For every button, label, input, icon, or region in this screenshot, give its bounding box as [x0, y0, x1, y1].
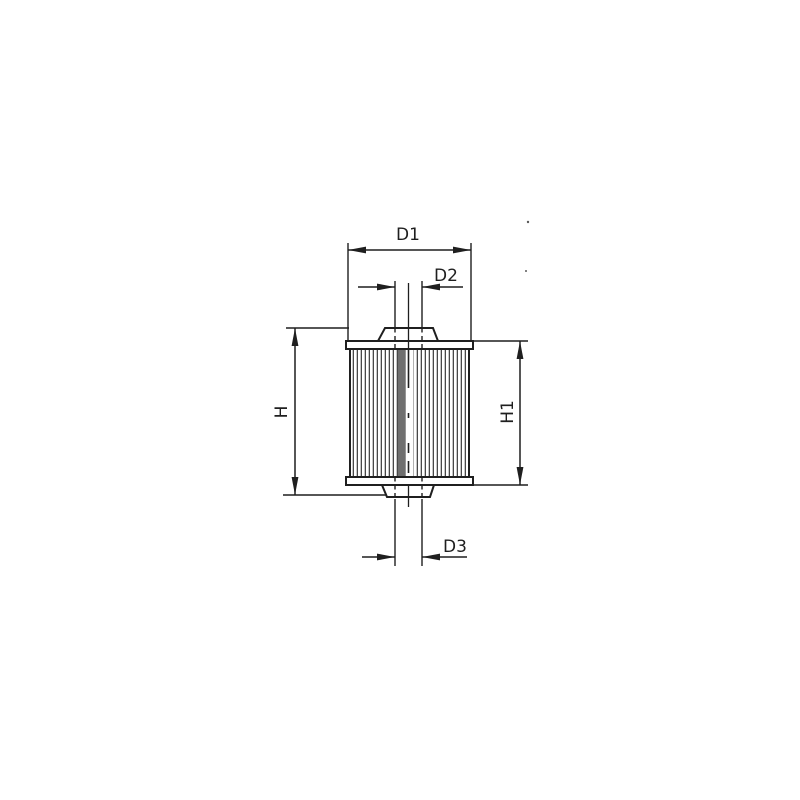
d1-arrowhead-left	[348, 247, 366, 254]
h-arrowhead-bottom	[292, 477, 299, 495]
inner-tube-shadow	[398, 350, 405, 476]
d3-label: D3	[443, 537, 467, 557]
d1-arrowhead-right	[453, 247, 471, 254]
d2-label: D2	[434, 266, 458, 286]
h1-label: H1	[498, 400, 518, 424]
scan-speck	[525, 270, 527, 272]
h-label: H	[272, 406, 292, 419]
d3-arrowhead-right	[422, 554, 440, 561]
center-axis-clearance	[406, 350, 414, 476]
h1-arrowhead-bottom	[517, 467, 524, 485]
dimension-d3: D3	[362, 499, 467, 566]
dimension-h1: H1	[474, 341, 528, 485]
d2-arrowhead-left	[377, 284, 395, 291]
dimension-d2: D2	[358, 266, 463, 327]
bottom-end-plate	[346, 477, 473, 485]
filter-element	[346, 283, 473, 507]
h-arrowhead-top	[292, 328, 299, 346]
h1-arrowhead-top	[517, 341, 524, 359]
d3-arrowhead-left	[377, 554, 395, 561]
filter-element-diagram: D1 D2 D3 H	[0, 0, 800, 800]
d1-label: D1	[396, 225, 420, 245]
technical-drawing-page: D1 D2 D3 H	[0, 0, 800, 800]
top-end-plate	[346, 341, 473, 349]
scan-speck	[527, 221, 529, 223]
